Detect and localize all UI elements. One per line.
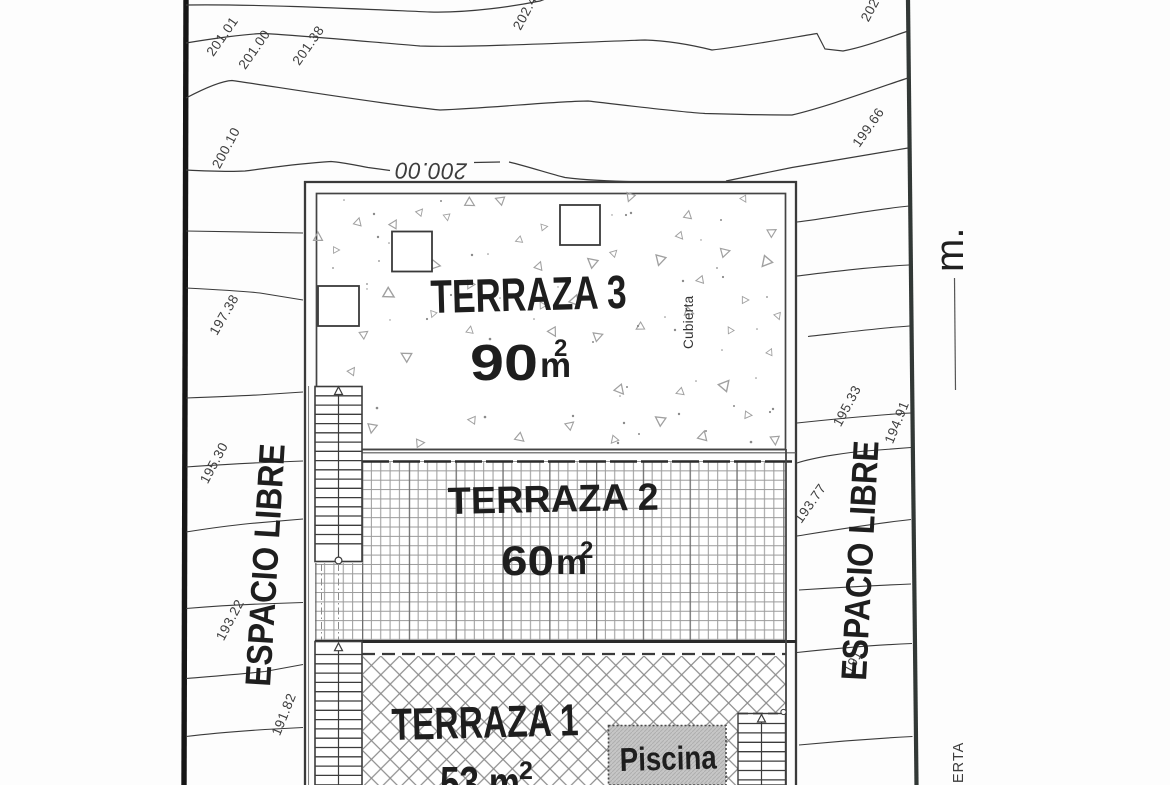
svg-text:53 m: 53 m	[440, 757, 520, 785]
svg-text:Cubierta: Cubierta	[681, 295, 696, 349]
svg-text:m.: m.	[928, 228, 972, 272]
svg-text:2: 2	[519, 757, 533, 785]
svg-text:TERRAZA 3: TERRAZA 3	[430, 265, 627, 323]
svg-text:200.00: 200.00	[395, 158, 468, 185]
svg-text:TERRAZA 2: TERRAZA 2	[447, 477, 659, 523]
svg-text:2: 2	[554, 335, 567, 362]
svg-text:TERRAZA 1: TERRAZA 1	[391, 694, 579, 750]
svg-text:60: 60	[501, 537, 554, 584]
svg-text:2: 2	[580, 537, 593, 564]
svg-text:ERTA: ERTA	[951, 742, 967, 783]
svg-text:Piscina: Piscina	[619, 738, 717, 778]
svg-text:90: 90	[470, 334, 538, 391]
